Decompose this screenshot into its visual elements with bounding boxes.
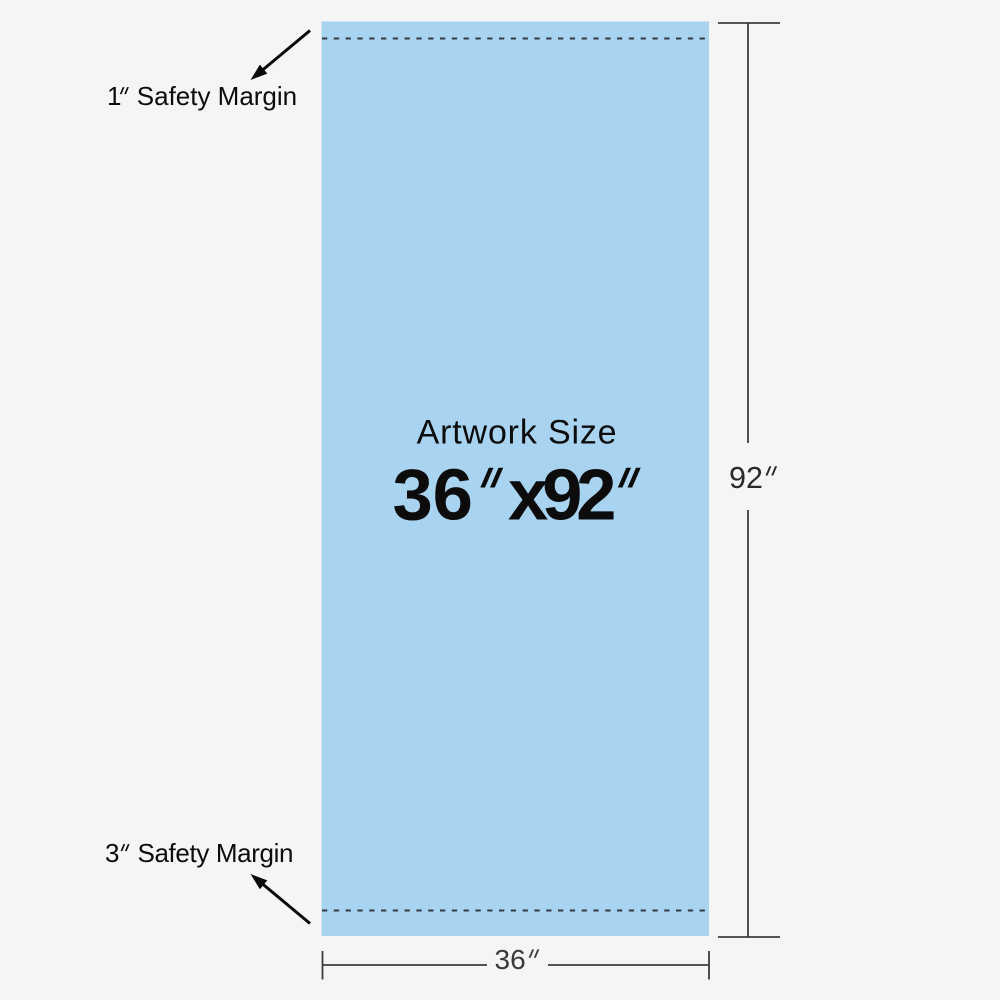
svg-text:92: 92 <box>729 461 763 495</box>
svg-text:1: 1 <box>107 81 121 111</box>
svg-text:Safety Margin: Safety Margin <box>137 81 297 111</box>
svg-text:x92: x92 <box>508 455 617 536</box>
svg-text:3: 3 <box>105 838 119 868</box>
svg-text:36: 36 <box>393 455 474 536</box>
svg-text:Artwork Size: Artwork Size <box>417 414 617 452</box>
svg-text:36: 36 <box>495 944 526 975</box>
svg-text:Safety Margin: Safety Margin <box>138 838 294 868</box>
